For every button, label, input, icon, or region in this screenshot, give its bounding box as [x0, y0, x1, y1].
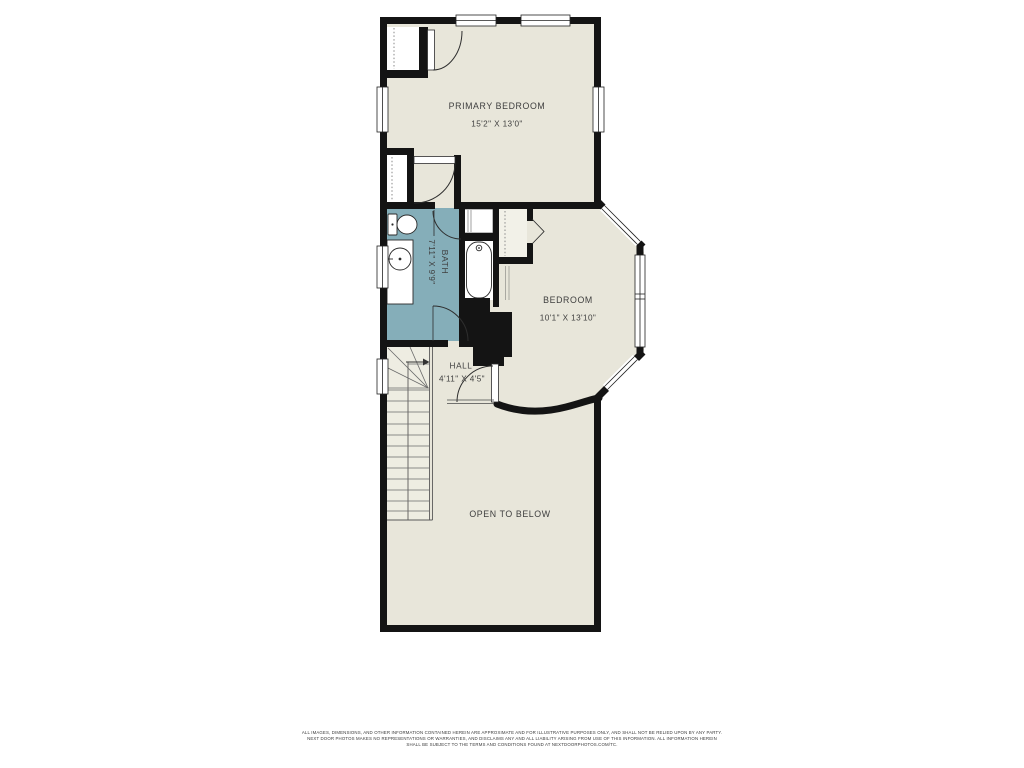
hall-label: HALL [450, 362, 473, 371]
primary-closet-2 [386, 155, 407, 203]
bath-label-block: BATH 7'11" X 9'9" [425, 240, 451, 285]
wall-outer-bottom [380, 625, 601, 632]
primary-bedroom-dimensions: 15'2" X 13'0" [471, 120, 522, 129]
floor-plan-drawing [0, 0, 1024, 768]
window-right-primary [593, 87, 604, 132]
wall-outer-right-lower [594, 396, 601, 632]
window-bay-right [635, 255, 645, 347]
window-left-stairs [377, 359, 388, 394]
toilet [388, 214, 417, 235]
bath-label: BATH [438, 240, 451, 285]
disclaimer-line-3: SHALL BE SUBJECT TO THE TERMS AND CONDIT… [0, 742, 1024, 748]
window-top-2 [521, 15, 570, 26]
floor-plan-page: PRIMARY BEDROOM 15'2" X 13'0" BATH 7'11"… [0, 0, 1024, 768]
floor-fills [383, 20, 644, 629]
window-left-primary [377, 87, 388, 132]
bedroom-dimensions: 10'1" X 13'10" [540, 314, 596, 323]
bedroom-label: BEDROOM [543, 295, 593, 305]
bathtub [465, 241, 493, 300]
open-to-below-label: OPEN TO BELOW [469, 509, 550, 519]
window-top-1 [456, 15, 496, 26]
stairs [387, 347, 433, 520]
bath-dimensions: 7'11" X 9'9" [425, 240, 438, 285]
disclaimer: ALL IMAGES, DIMENSIONS, AND OTHER INFORM… [0, 730, 1024, 748]
vanity-sink [387, 240, 413, 304]
window-left-bath [377, 246, 388, 288]
linen-closet [464, 209, 493, 233]
hall-dimensions: 4'11" X 4'5" [439, 375, 485, 384]
primary-bedroom-label: PRIMARY BEDROOM [449, 101, 546, 111]
primary-closet-1 [387, 27, 419, 70]
